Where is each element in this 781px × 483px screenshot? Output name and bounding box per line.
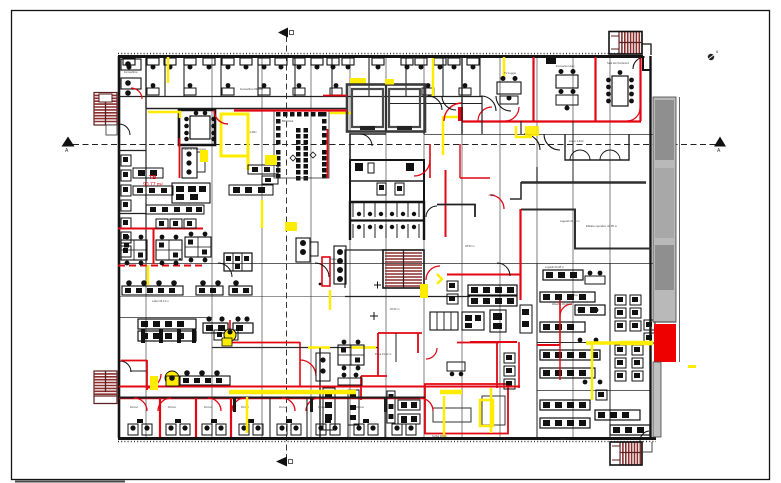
svg-text:Kopie: Kopie: [330, 257, 337, 261]
svg-text:Effekte spenden 44,05 m: Effekte spenden 44,05 m: [586, 224, 618, 228]
svg-text:Fernsehbox 89,96m: Fernsehbox 89,96m: [240, 87, 263, 91]
svg-text:Fernseher Heim: Fernseher Heim: [556, 64, 575, 68]
svg-text:TB: TB: [149, 175, 156, 181]
svg-text:28,50 m: 28,50 m: [465, 244, 474, 248]
svg-text:Zimmer: Zimmer: [130, 406, 138, 409]
svg-text:Zimmer: Zimmer: [279, 406, 287, 409]
svg-text:Labor 66,14 m: Labor 66,14 m: [152, 299, 169, 303]
svg-text:90,77 m²: 90,77 m²: [143, 182, 163, 188]
svg-text:Logistik 60,08 m: Logistik 60,08 m: [545, 265, 564, 269]
svg-text:Rhea 34,42 m: Rhea 34,42 m: [375, 352, 391, 356]
svg-text:Schlaf 28,04: Schlaf 28,04: [432, 434, 447, 438]
svg-text:Anger 4,63m: Anger 4,63m: [569, 139, 584, 143]
svg-text:TV Loggia: TV Loggia: [504, 71, 516, 75]
svg-text:Zimmer: Zimmer: [318, 406, 326, 409]
svg-text:Zimmer: Zimmer: [204, 406, 212, 409]
svg-text:Bibliothek: Bibliothek: [282, 119, 294, 123]
svg-text:33,04 m: 33,04 m: [560, 437, 569, 441]
svg-text:Wasche 33,09 m: Wasche 33,09 m: [552, 302, 571, 306]
svg-text:Fernsehbox: Fernsehbox: [124, 70, 138, 74]
svg-text:Zimmer: Zimmer: [356, 406, 364, 409]
svg-text:Saal der Konferenz: Saal der Konferenz: [607, 61, 630, 65]
svg-text:Lagerab 44,05 m: Lagerab 44,05 m: [560, 219, 580, 223]
svg-text:45,50 m: 45,50 m: [390, 307, 399, 311]
svg-text:Zimmer: Zimmer: [168, 406, 176, 409]
svg-text:J 30L: J 30L: [488, 193, 496, 197]
